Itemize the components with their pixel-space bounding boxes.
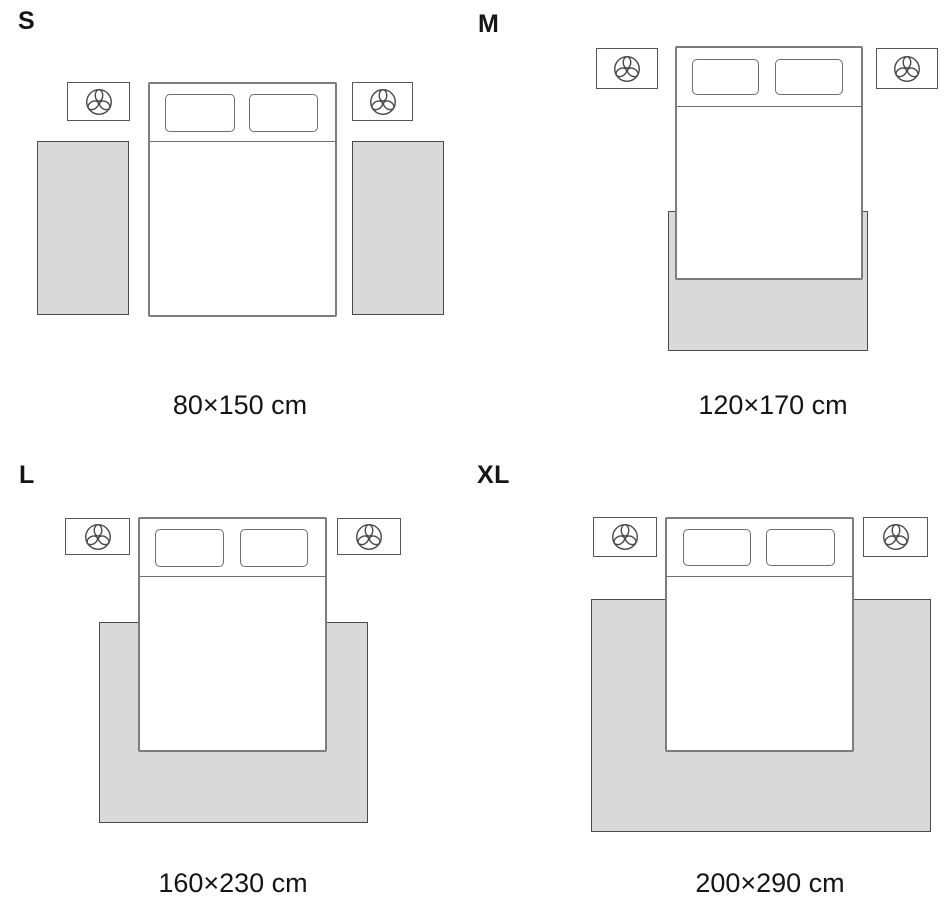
nightstand <box>876 48 938 89</box>
plant-icon <box>608 520 642 554</box>
nightstand <box>596 48 658 89</box>
pillow <box>683 529 751 566</box>
nightstand <box>863 517 928 557</box>
bed-headboard <box>677 48 861 107</box>
plant-icon <box>81 520 115 554</box>
bed <box>148 82 337 317</box>
size-dimensions: 200×290 cm <box>570 867 950 899</box>
size-label: M <box>478 12 499 37</box>
bed <box>675 46 863 280</box>
pillow <box>775 59 843 95</box>
size-label: XL <box>477 463 510 488</box>
size-label: L <box>19 463 35 488</box>
bed-headboard <box>150 84 335 142</box>
pillow <box>249 94 318 132</box>
pillow <box>692 59 759 95</box>
plant-icon <box>890 52 924 86</box>
nightstand <box>352 82 413 121</box>
pillow <box>240 529 308 567</box>
size-option-l: L <box>0 450 475 900</box>
bed <box>665 517 854 752</box>
size-option-xl: XL <box>475 450 950 900</box>
nightstand <box>65 518 130 555</box>
size-dimensions: 160×230 cm <box>33 867 433 899</box>
size-dimensions: 120×170 cm <box>573 389 950 421</box>
nightstand <box>593 517 657 557</box>
size-label: S <box>18 9 35 34</box>
rug-size-guide: S <box>0 0 950 900</box>
plant-icon <box>610 52 644 86</box>
size-option-m: M <box>475 0 950 450</box>
pillow <box>766 529 835 566</box>
rug <box>352 141 444 315</box>
plant-icon <box>352 520 386 554</box>
size-option-s: S <box>0 0 475 450</box>
pillow <box>155 529 224 567</box>
nightstand <box>67 82 130 121</box>
plant-icon <box>879 520 913 554</box>
bed-headboard <box>140 519 325 577</box>
plant-icon <box>82 85 116 119</box>
bed-headboard <box>667 519 852 577</box>
bed <box>138 517 327 752</box>
nightstand <box>337 518 401 555</box>
rug <box>37 141 129 315</box>
size-dimensions: 80×150 cm <box>40 389 440 421</box>
pillow <box>165 94 235 132</box>
plant-icon <box>366 85 400 119</box>
